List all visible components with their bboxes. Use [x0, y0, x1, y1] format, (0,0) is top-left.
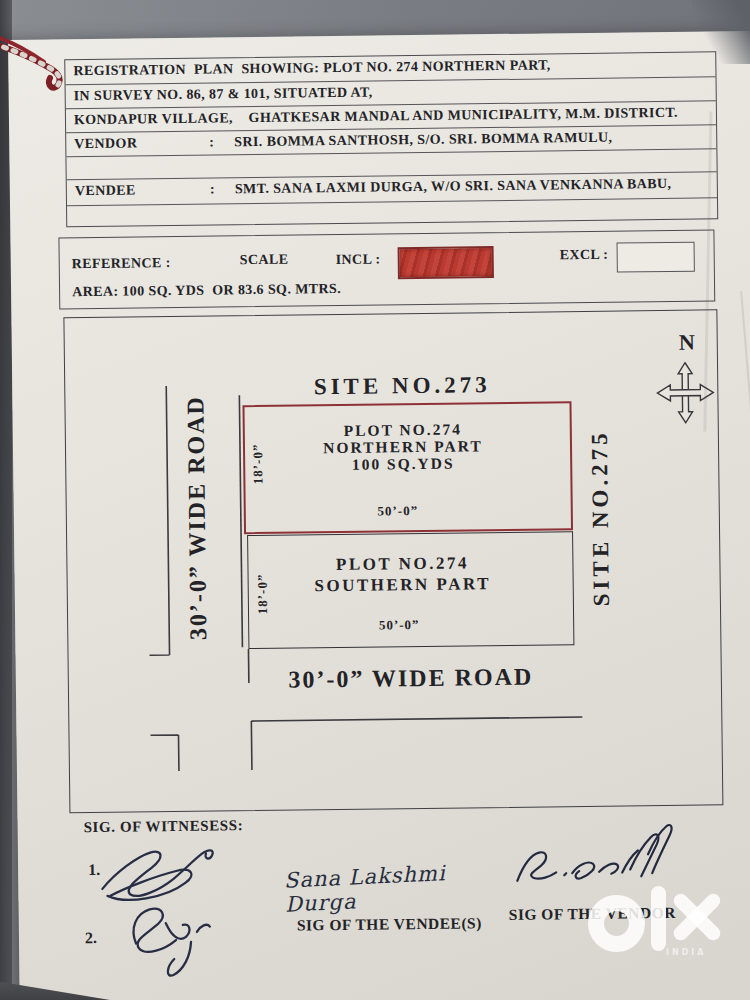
northern-plot-width-label: 50’-0” [348, 503, 448, 520]
witness-1-number: 1. [88, 861, 100, 879]
west-road-label: 30’-0” WIDE ROAD [182, 380, 219, 654]
site-no-275-label: SITE NO.275 [586, 398, 619, 638]
village-text: KONDAPUR VILLAGE, GHATKESAR MANDAL AND M… [74, 105, 678, 128]
excl-label: EXCL : [560, 247, 609, 264]
vendee-value: SMT. SANA LAXMI DURGA, W/O SRI. SANA VEN… [235, 176, 672, 197]
paper-sheet: REGISTRATION PLAN SHOWING: PLOT NO. 274 … [8, 30, 750, 1000]
vendee-signature-text: Sana Lakshmi Durga [283, 858, 515, 917]
registration-title: REGISTRATION PLAN SHOWING: PLOT NO. 274 … [73, 57, 551, 79]
northern-plot-depth-label: 18’-0” [250, 429, 267, 499]
vendee-label: VENDEE [75, 182, 136, 199]
vendor-label: VENDOR [74, 135, 137, 152]
fabric-top-right-corner [692, 0, 750, 64]
northern-plot-line3: 100 SQ.YDS [263, 453, 543, 473]
excl-empty-box [617, 242, 695, 273]
southern-plot-title: PLOT NO.274 SOUTHERN PART [262, 552, 542, 597]
binding-thread-icon [0, 0, 120, 120]
olx-x-icon [672, 889, 722, 945]
vendor-value: SRI. BOMMA SANTHOSH, S/O. SRI. BOMMA RAM… [234, 130, 612, 151]
vendor-colon: : [209, 134, 214, 150]
northern-plot-title: PLOT NO.274 NORTHERN PART 100 SQ.YDS [263, 419, 544, 473]
olx-l-icon [651, 886, 666, 951]
photo-background: { "header": { "row1": "REGISTRATION PLAN… [0, 0, 750, 1000]
compass-north-label: N [672, 330, 702, 356]
witness-2-number: 2. [85, 929, 97, 947]
olx-o-icon [588, 895, 645, 952]
witness-2-signature [133, 908, 210, 976]
witness-heading: SIG. OF WITNESESS: [84, 817, 244, 836]
incl-label: INCL : [336, 251, 381, 268]
area-text: AREA: 100 SQ. YDS OR 83.6 SQ. MTRS. [72, 281, 341, 300]
header-table: REGISTRATION PLAN SHOWING: PLOT NO. 274 … [64, 51, 718, 227]
olx-india-label: INDIA [666, 948, 736, 957]
south-road-label: 30’-0” WIDE ROAD [228, 663, 594, 694]
witness-1-signature [102, 850, 213, 900]
reference-label: REFERENCE : [72, 255, 171, 272]
vendor-signature [517, 825, 673, 881]
southern-plot-depth-label: 18’-0” [254, 559, 271, 629]
incl-filled-box [398, 246, 494, 279]
reference-table: REFERENCE : SCALE INCL : EXCL : AREA: 10… [58, 229, 715, 309]
southern-plot-line2: SOUTHERN PART [263, 573, 543, 597]
southern-plot-width-label: 50’-0” [349, 617, 449, 634]
scale-label: SCALE [240, 252, 289, 269]
vendee-caption: SIG OF THE VENDEE(S) [297, 914, 482, 934]
vendee-colon: : [210, 181, 215, 197]
site-no-273-label: SITE NO.273 [242, 371, 562, 401]
